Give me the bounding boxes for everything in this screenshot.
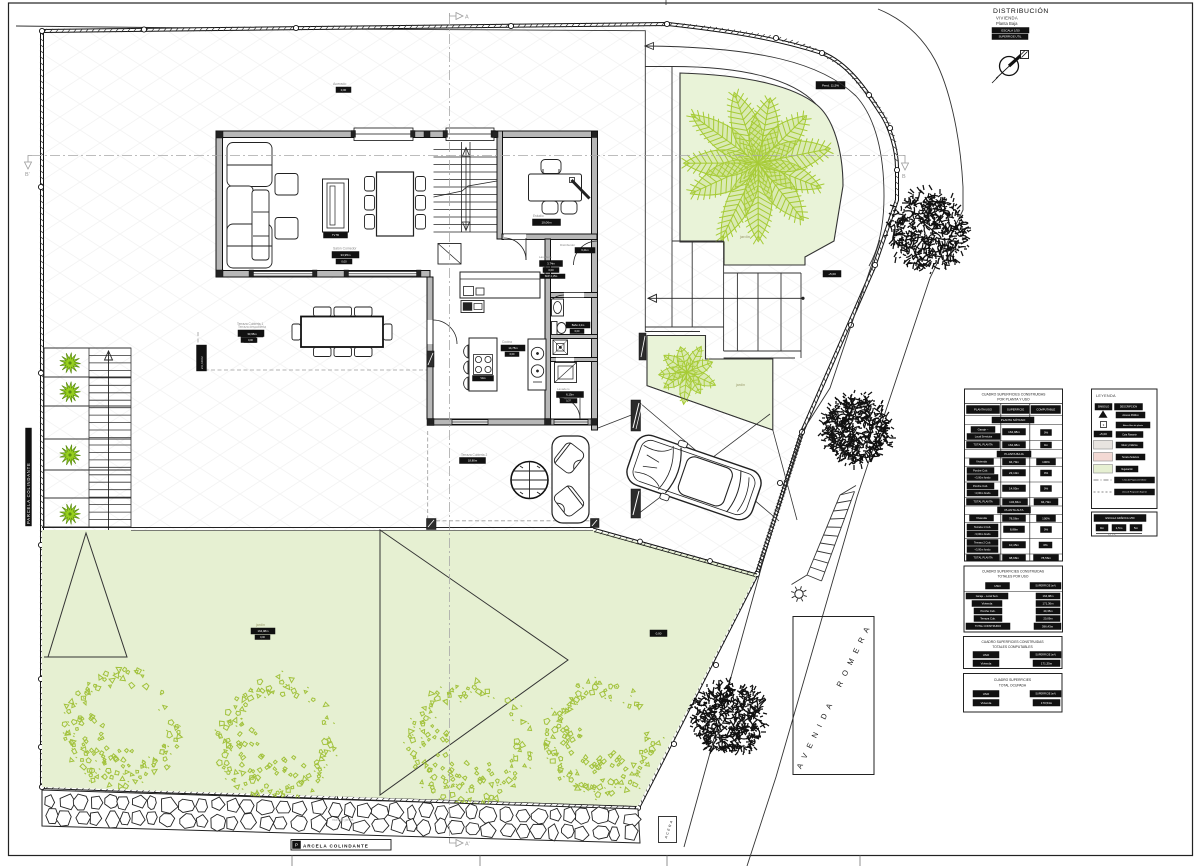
svg-text:+5,00: +5,00 xyxy=(1099,432,1107,436)
svg-text:TV 55: TV 55 xyxy=(332,233,339,237)
svg-text:Muro y Fábrica: Muro y Fábrica xyxy=(1122,444,1139,447)
svg-text:CUADRO SUPERFICIES CONSTRUIDAS: CUADRO SUPERFICIES CONSTRUIDAS xyxy=(981,640,1044,644)
svg-text:396,43m: 396,43m xyxy=(1042,624,1054,628)
svg-text:Terraza 2 Cub.: Terraza 2 Cub. xyxy=(974,540,991,544)
svg-text:TOTAL PLANTA: TOTAL PLANTA xyxy=(973,500,993,504)
svg-text:SUPERFICIE UTIL: SUPERFICIE UTIL xyxy=(999,35,1022,39)
svg-text:Terraza 1 Cub.: Terraza 1 Cub. xyxy=(974,525,991,529)
svg-text:A': A' xyxy=(465,842,470,848)
svg-text:jardín: jardín xyxy=(735,383,745,387)
svg-text:0%: 0% xyxy=(1044,431,1049,435)
svg-text:18,80m: 18,80m xyxy=(468,459,478,463)
svg-text:Acerado: Acerado xyxy=(333,82,346,86)
svg-text:0%: 0% xyxy=(1044,471,1049,475)
svg-text:0%: 0% xyxy=(1044,528,1049,532)
svg-text:TOTALES COMPUTABLES: TOTALES COMPUTABLES xyxy=(992,645,1033,649)
svg-text:Cota Rasante: Cota Rasante xyxy=(1122,433,1137,436)
svg-text:Línea de Proyección Superior: Línea de Proyección Superior xyxy=(1122,491,1147,494)
svg-text:jardín: jardín xyxy=(255,623,265,627)
svg-text:Acceso Público: Acceso Público xyxy=(1122,414,1139,417)
svg-text:Lavadero: Lavadero xyxy=(557,387,570,391)
svg-text:SUPERFICIE (m²): SUPERFICIE (m²) xyxy=(1035,654,1055,657)
svg-text:USO: USO xyxy=(994,584,1001,588)
svg-text:Planta Baja: Planta Baja xyxy=(996,21,1018,26)
svg-text:Vivienda: Vivienda xyxy=(982,602,993,606)
svg-text:Vitro: Vitro xyxy=(480,376,486,380)
svg-text:10,06m: 10,06m xyxy=(541,220,552,224)
svg-text:171,35m: 171,35m xyxy=(1041,661,1053,665)
svg-text:ESCALA 1/50: ESCALA 1/50 xyxy=(1001,28,1020,32)
svg-text:Garaje – Local Serv.: Garaje – Local Serv. xyxy=(976,595,999,598)
svg-text:Terraza Cub.: Terraza Cub. xyxy=(980,616,996,620)
svg-text:Vivienda: Vivienda xyxy=(976,460,987,464)
svg-text:98,68m: 98,68m xyxy=(1009,556,1020,560)
svg-text:Vegetación: Vegetación xyxy=(1121,468,1134,471)
svg-text:>3,00m fondo: >3,00m fondo xyxy=(975,491,991,495)
svg-text:muro de piedra: muro de piedra xyxy=(332,818,354,822)
svg-text:Porche Cub.: Porche Cub. xyxy=(973,468,988,472)
svg-text:PARCELA COLINDANTE: PARCELA COLINDANTE xyxy=(26,462,31,524)
svg-text:94,79m: 94,79m xyxy=(1041,500,1052,504)
svg-text:TOTAL PLANTA: TOTAL PLANTA xyxy=(973,443,993,447)
svg-text:3,74m: 3,74m xyxy=(547,262,555,266)
svg-text:0%: 0% xyxy=(1043,543,1048,547)
svg-text:23,10m²: 23,10m² xyxy=(200,356,204,369)
svg-text:10,45m: 10,45m xyxy=(1009,543,1020,547)
svg-text:Porche Cub.: Porche Cub. xyxy=(973,484,988,488)
svg-text:5m: 5m xyxy=(1134,526,1139,530)
svg-text:0,00: 0,00 xyxy=(341,259,347,263)
svg-text:TOTAL CONSTRUIDO: TOTAL CONSTRUIDO xyxy=(975,624,1001,628)
svg-text:14,75m: 14,75m xyxy=(508,346,518,350)
svg-text:Línea de Proyección Inferior: Línea de Proyección Inferior xyxy=(1123,479,1147,482)
svg-text:0m: 0m xyxy=(1100,526,1105,530)
svg-text:Lavadero: Lavadero xyxy=(539,255,552,259)
svg-text:Local Servicios: Local Servicios xyxy=(975,434,993,438)
svg-text:<3,00m fondo: <3,00m fondo xyxy=(975,532,991,536)
svg-text:COMPUTABLE: COMPUTABLE xyxy=(1036,408,1055,412)
svg-text:SUPERFICIE (m²): SUPERFICIE (m²) xyxy=(1035,585,1055,588)
svg-text:Distribuidor: Distribuidor xyxy=(560,243,575,247)
svg-text:+5,00: +5,00 xyxy=(828,272,836,276)
svg-text:USO: USO xyxy=(983,692,990,696)
svg-text:6,15m: 6,15m xyxy=(566,393,574,397)
svg-text:PLANTA SÓTANO: PLANTA SÓTANO xyxy=(1001,417,1026,422)
svg-text:170,54m: 170,54m xyxy=(1041,701,1053,705)
svg-text:ARCELA COLINDANTE: ARCELA COLINDANTE xyxy=(303,844,369,849)
svg-text:6,41m: 6,41m xyxy=(581,248,588,252)
svg-text:TOTAL OCUPADA: TOTAL OCUPADA xyxy=(999,684,1027,688)
svg-text:0,00: 0,00 xyxy=(260,636,265,639)
svg-text:TOTAL PLANTA: TOTAL PLANTA xyxy=(973,556,993,560)
svg-text:94,79m: 94,79m xyxy=(1009,460,1020,464)
svg-text:Estudio: Estudio xyxy=(533,214,544,218)
svg-text:Altura libre de planta: Altura libre de planta xyxy=(1123,424,1144,427)
svg-text:<3,00m fondo: <3,00m fondo xyxy=(975,475,991,479)
svg-text:Vivienda: Vivienda xyxy=(976,516,987,520)
svg-text:14,95m: 14,95m xyxy=(1009,486,1020,490)
svg-text:SIMBOLO: SIMBOLO xyxy=(1098,406,1109,409)
svg-text:B: B xyxy=(902,174,906,180)
svg-text:1,5m: 1,5m xyxy=(1116,526,1123,530)
svg-text:Pend. 11,5%: Pend. 11,5% xyxy=(822,83,839,87)
svg-text:POR PLANTA Y USO: POR PLANTA Y USO xyxy=(997,398,1030,402)
svg-text:PLANTA BAJA: PLANTA BAJA xyxy=(1004,452,1024,456)
svg-text:100%: 100% xyxy=(1042,516,1050,520)
svg-text:SUP. 2,15m: SUP. 2,15m xyxy=(545,275,558,278)
svg-text:Baño 4,2m: Baño 4,2m xyxy=(572,323,585,327)
svg-text:Salón Comedor: Salón Comedor xyxy=(333,247,357,251)
svg-text:164,98m: 164,98m xyxy=(1008,430,1020,434)
svg-text:jardín: jardín xyxy=(739,234,750,239)
svg-text:164,98m: 164,98m xyxy=(1008,443,1020,447)
svg-text:PLANTA ALTA: PLANTA ALTA xyxy=(1004,508,1023,512)
svg-text:SUPERFICIE (m²): SUPERFICIE (m²) xyxy=(1035,693,1055,696)
svg-text:Terraza Cubierta 1: Terraza Cubierta 1 xyxy=(237,322,263,326)
svg-text:PLANTA/USO: PLANTA/USO xyxy=(974,408,993,412)
svg-text:A: A xyxy=(465,15,469,21)
svg-text:Cocina: Cocina xyxy=(502,340,512,344)
svg-text:Vivienda: Vivienda xyxy=(981,701,992,705)
svg-text:CUADRO SUPERFICIES CONSTRUIDAS: CUADRO SUPERFICIES CONSTRUIDAS xyxy=(982,570,1045,574)
svg-text:SUPERFICIE: SUPERFICIE xyxy=(1007,408,1024,412)
svg-text:0 1 2 3: 0 1 2 3 xyxy=(1108,534,1116,537)
svg-text:78,56m: 78,56m xyxy=(1009,516,1020,520)
svg-text:171,36m: 171,36m xyxy=(1043,602,1055,606)
svg-text:23,10m: 23,10m xyxy=(1009,471,1020,475)
svg-text:20,09m: 20,09m xyxy=(1043,617,1053,621)
svg-text:100%: 100% xyxy=(1042,460,1050,464)
svg-text:DISTRIBUCIÓN: DISTRIBUCIÓN xyxy=(993,6,1049,15)
svg-text:164,98m: 164,98m xyxy=(1043,594,1055,598)
svg-text:LEYENDA: LEYENDA xyxy=(1096,394,1116,398)
svg-text:USO: USO xyxy=(983,653,990,657)
svg-text:CUADRO SUPERFICIES CONSTRUIDAS: CUADRO SUPERFICIES CONSTRUIDAS xyxy=(982,393,1047,397)
svg-text:134,84m: 134,84m xyxy=(1009,500,1021,504)
svg-text:8,88m: 8,88m xyxy=(1010,527,1019,531)
svg-text:78,56m: 78,56m xyxy=(1041,556,1052,560)
svg-text:40,35m: 40,35m xyxy=(1043,609,1053,613)
svg-text:DESCRIPCION: DESCRIPCION xyxy=(1120,406,1138,409)
svg-text:0,00: 0,00 xyxy=(575,330,580,333)
svg-text:Terraza Solarium: Terraza Solarium xyxy=(1122,456,1139,459)
svg-text:Terraza Cubierta 2: Terraza Cubierta 2 xyxy=(461,453,487,457)
svg-text:Porche Cub.: Porche Cub. xyxy=(981,609,996,613)
svg-text:0,00: 0,00 xyxy=(510,353,515,356)
svg-text:ESCALA GRÁFICA 1/50: ESCALA GRÁFICA 1/50 xyxy=(1106,516,1135,520)
svg-text:0m: 0m xyxy=(1044,443,1049,447)
svg-text:0,00: 0,00 xyxy=(341,88,347,92)
svg-text:0%: 0% xyxy=(1044,487,1049,491)
svg-text:CUADRO SUPERFICIES: CUADRO SUPERFICIES xyxy=(994,678,1032,682)
svg-text:33,95m: 33,95m xyxy=(340,253,351,257)
svg-text:33,95m: 33,95m xyxy=(247,332,257,336)
svg-text:164,98m: 164,98m xyxy=(258,629,270,633)
svg-text:P: P xyxy=(295,842,298,847)
svg-text:Garaje –: Garaje – xyxy=(978,428,989,432)
svg-text:<3,00m fondo: <3,00m fondo xyxy=(975,547,991,551)
svg-text:0,00: 0,00 xyxy=(656,631,662,635)
svg-text:B': B' xyxy=(25,172,30,178)
svg-text:Vivienda: Vivienda xyxy=(981,661,992,665)
svg-text:0,00: 0,00 xyxy=(248,339,253,342)
svg-text:VIVIENDA: VIVIENDA xyxy=(996,16,1018,21)
svg-text:0,00: 0,00 xyxy=(548,268,554,272)
svg-text:TOTALES POR USO: TOTALES POR USO xyxy=(998,575,1029,579)
